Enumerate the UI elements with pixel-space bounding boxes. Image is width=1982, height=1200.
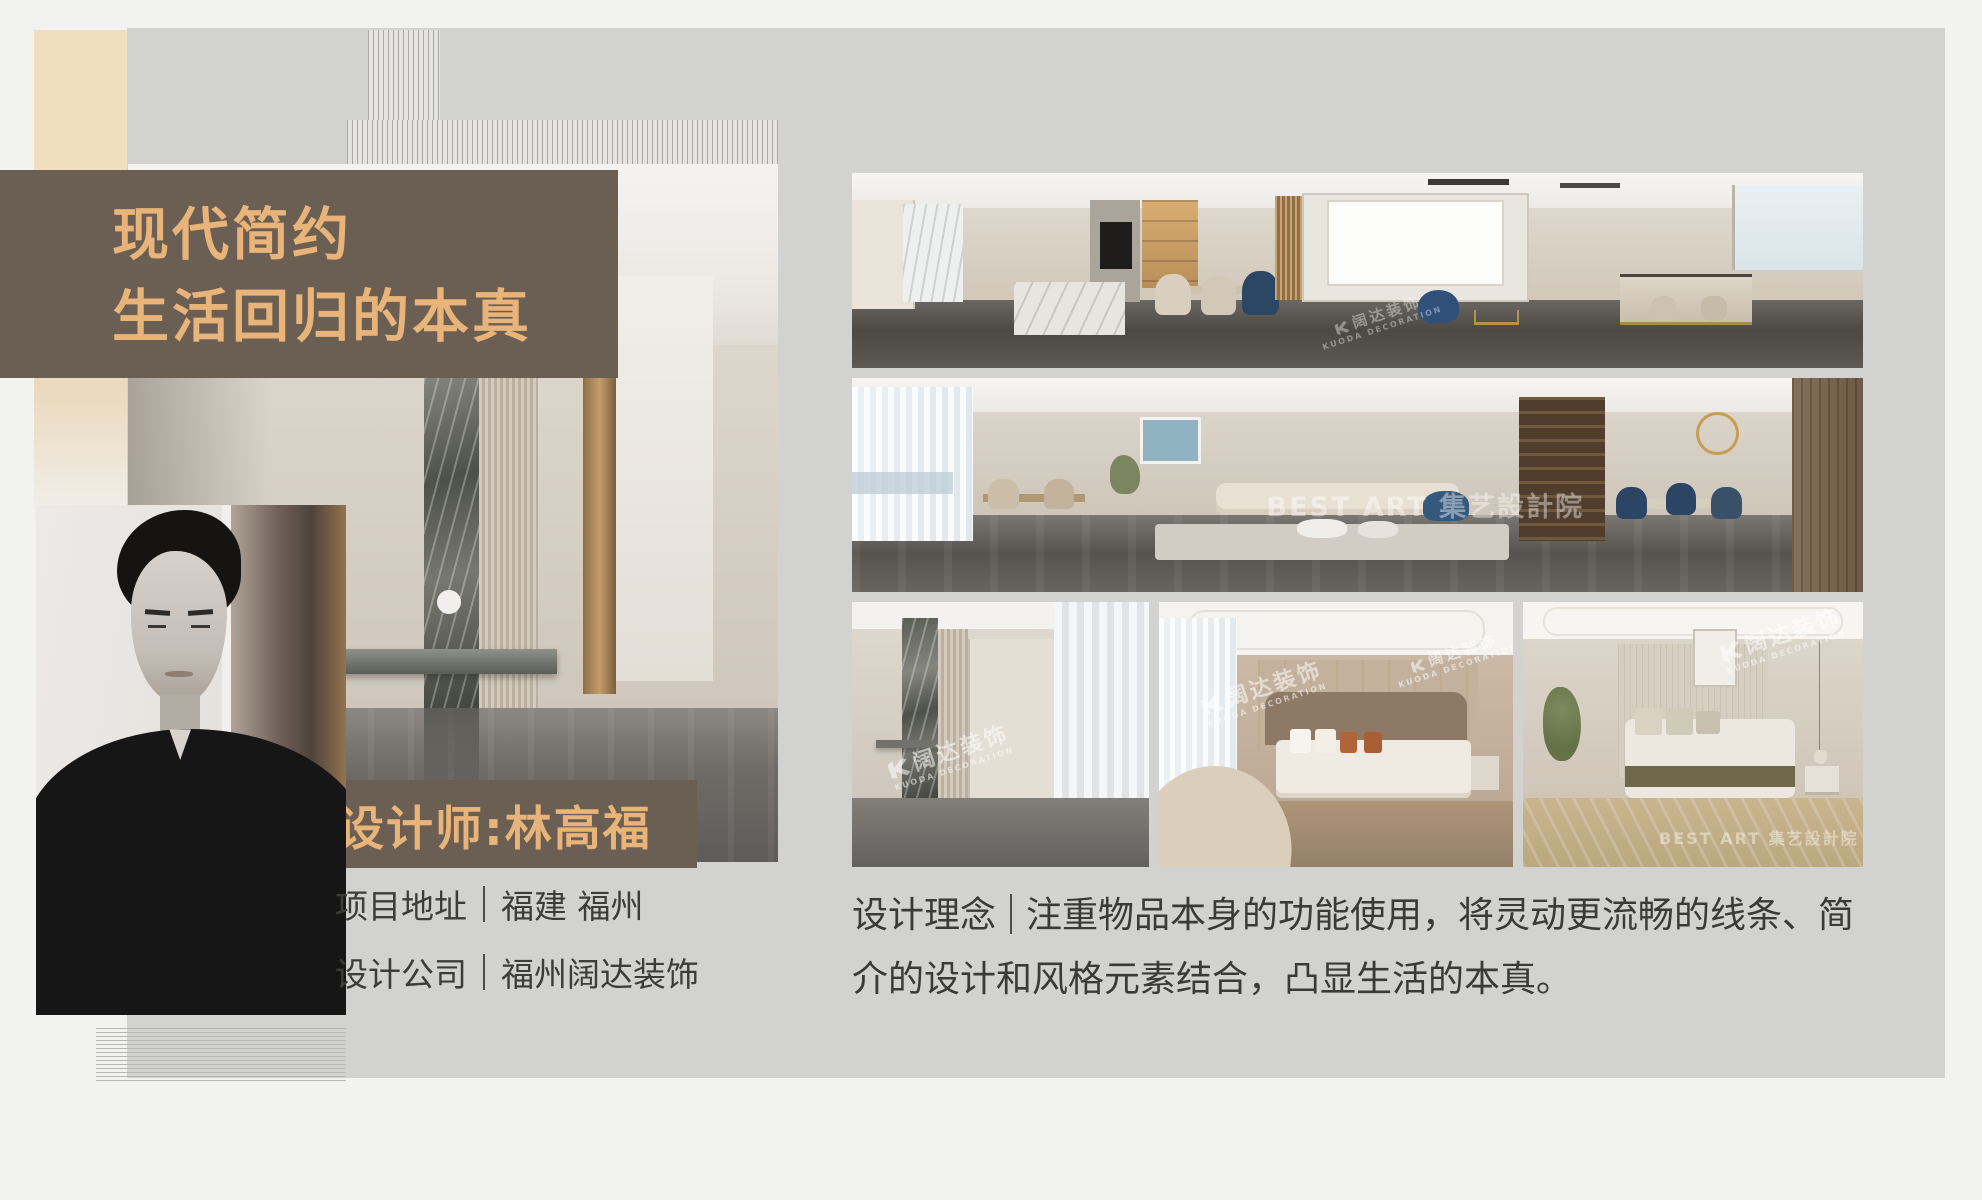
coffee-table-shape: [1297, 519, 1348, 538]
divider-bar: [1010, 894, 1012, 934]
sea-view-shape: [852, 472, 953, 493]
photo-bedroom-curved-sofa: 阔达装饰 KUODA DECORATION 阔达装饰 KUODA DECORAT…: [1159, 602, 1513, 867]
wall-art-shape: [1140, 417, 1201, 464]
plant-shape: [1110, 455, 1140, 494]
end-wall-shape: [616, 276, 714, 681]
pillow-orange-shape: [1364, 732, 1382, 753]
pillow-shape: [1635, 708, 1662, 735]
pendant-cord-shape: [1819, 639, 1820, 756]
designer-portrait-photo: [36, 505, 346, 1015]
dining-chair-shape: [1155, 274, 1190, 315]
wall-panel-shape: [968, 639, 1054, 798]
right-eye-shape: [191, 625, 210, 629]
marble-strip-shape: [902, 618, 938, 798]
wood-slat-divider-shape: [1275, 196, 1305, 299]
marble-shelf-shape: [310, 649, 557, 673]
plant-shape: [1543, 687, 1580, 761]
navy-chair-shape: [1711, 487, 1741, 519]
bar-stool-shape: [1651, 296, 1676, 321]
pinstripe-decoration-band: [347, 120, 778, 164]
bar-stool-shape: [1701, 296, 1726, 321]
project-address-value: 福建 福州: [501, 880, 644, 928]
divider-bar: [483, 886, 485, 922]
design-company-label: 设计公司: [335, 948, 467, 996]
ceiling-vent-shape: [1560, 183, 1621, 188]
nightstand-shape: [1471, 756, 1499, 790]
floor-shape: [852, 798, 1149, 867]
ceiling-vent-shape: [1428, 179, 1509, 185]
left-brow-shape: [144, 609, 169, 616]
designer-name-label: 设计师:林高福: [337, 790, 652, 859]
design-concept-text: 注重物品本身的功能使用，将灵动更流畅的线条、简介的设计和风格元素结合，凸显生活的…: [852, 895, 1854, 1000]
mouth-shape: [165, 671, 193, 678]
glass-partition-shape: [1792, 378, 1863, 592]
sofa-shape: [1216, 483, 1459, 515]
projector-screen-shape: [1327, 200, 1504, 286]
title-line1: 现代简约: [112, 194, 618, 276]
torso-shape: [36, 729, 346, 1015]
title-line2: 生活回归的本真: [112, 276, 618, 358]
pillow-orange-shape: [1340, 732, 1358, 753]
pillow-shape: [1696, 711, 1720, 735]
bar-island-shape: [1620, 274, 1751, 325]
dining-chair-shape: [1201, 276, 1236, 315]
window-curtain-shape: [1054, 602, 1149, 798]
pillow-shape: [1666, 708, 1693, 735]
dining-chair-shape: [1044, 479, 1074, 509]
nightstand-shape: [1805, 766, 1839, 795]
photo-living-room-panorama: BEST ART 集艺設計院: [852, 378, 1863, 592]
design-concept-label: 设计理念: [852, 895, 996, 936]
photo-bedroom-wood-floor: 阔达装饰 KUODA DECORATION BEST ART 集艺設計院: [1523, 602, 1863, 867]
project-address-label: 项目地址: [335, 880, 467, 928]
coffee-table-shape: [1358, 521, 1398, 538]
blue-armchair-shape: [1423, 491, 1468, 521]
shelving-cabinet-shape: [1519, 397, 1605, 540]
project-address-row: 项目地址 福建 福州: [335, 880, 644, 928]
face-shape: [131, 551, 227, 704]
photo-kitchen-dining-panorama: 阔达装饰 KUODA DECORATION: [852, 173, 1863, 368]
poster-canvas: 阔达装饰 KUODA DECORATION 现代简约 生活回归的本真 设计师:林…: [0, 0, 1982, 1200]
sphere-ornament-shape: [437, 590, 461, 614]
oven-shape: [1100, 222, 1132, 269]
floor-chevron-shape: [1523, 798, 1863, 867]
pinstripe-decoration-vertical: [368, 30, 440, 122]
photo-hallway-small: 阔达装饰 KUODA DECORATION: [852, 602, 1149, 867]
design-concept-paragraph: 设计理念注重物品本身的功能使用，将灵动更流畅的线条、简介的设计和风格元素结合，凸…: [852, 884, 1872, 1012]
slat-wall-shape: [938, 629, 968, 799]
pillow-shape: [1290, 729, 1311, 753]
divider-bar: [483, 954, 485, 990]
dining-chair-shape: [988, 479, 1018, 509]
coffee-table-shape: [1474, 310, 1519, 326]
pendant-lamp-shape: [1814, 750, 1828, 763]
bed-runner-shape: [1625, 766, 1795, 787]
hatch-decoration: [96, 1028, 346, 1082]
design-company-value: 福州阔达装饰: [501, 948, 699, 996]
ceiling-shape: [852, 378, 1863, 412]
wall-picture-shape: [1693, 629, 1737, 687]
pillow-shape: [1315, 729, 1336, 753]
title-banner: 现代简约 生活回归的本真: [0, 170, 618, 378]
gold-ring-decor-shape: [1696, 412, 1738, 455]
marble-island-shape: [1014, 282, 1125, 335]
dining-chair-navy-shape: [1242, 271, 1278, 316]
design-company-row: 设计公司 福州阔达装饰: [335, 948, 699, 996]
blue-chair-shape: [1418, 290, 1458, 323]
left-eye-shape: [148, 625, 167, 629]
right-brow-shape: [188, 609, 213, 616]
navy-chair-shape: [1666, 483, 1696, 515]
window-curtain-shape: [852, 387, 973, 541]
marble-backsplash-shape: [903, 204, 964, 302]
window-shape: [1732, 185, 1863, 271]
navy-chair-shape: [1616, 487, 1646, 519]
